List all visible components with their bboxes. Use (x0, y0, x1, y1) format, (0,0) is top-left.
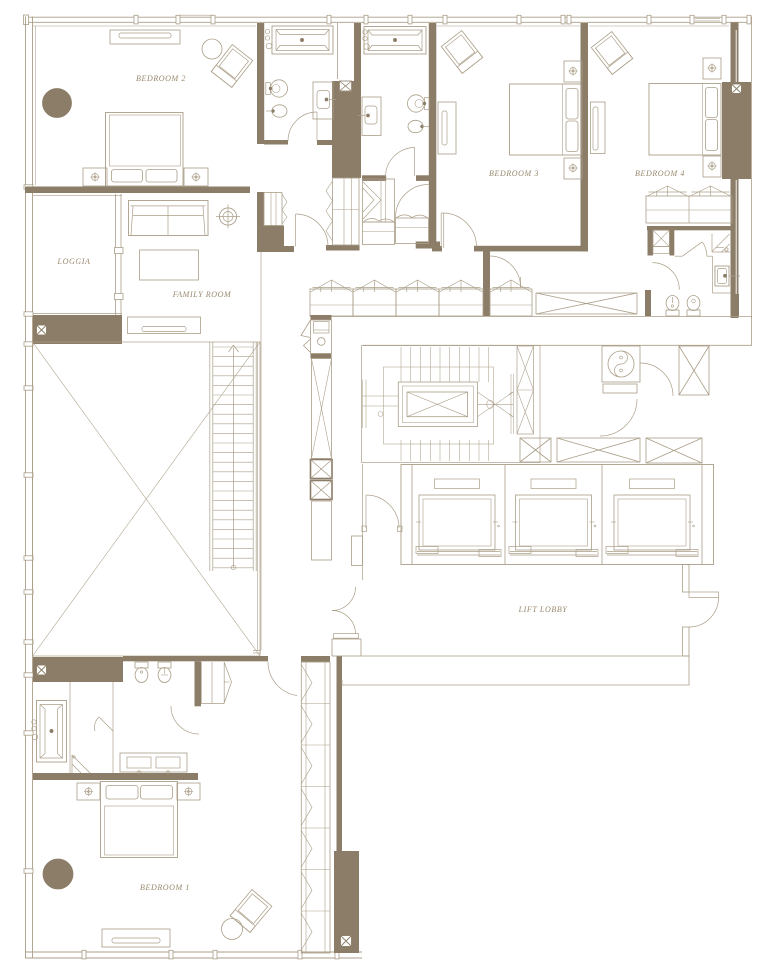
svg-text:FAMILY ROOM: FAMILY ROOM (172, 290, 232, 299)
svg-text:LOGGIA: LOGGIA (57, 257, 91, 266)
svg-text:BEDROOM 1: BEDROOM 1 (140, 883, 190, 892)
svg-text:BEDROOM 4: BEDROOM 4 (635, 169, 685, 178)
svg-text:LIFT LOBBY: LIFT LOBBY (518, 605, 569, 614)
svg-text:BEDROOM 3: BEDROOM 3 (489, 169, 539, 178)
svg-text:BEDROOM 2: BEDROOM 2 (136, 74, 186, 83)
